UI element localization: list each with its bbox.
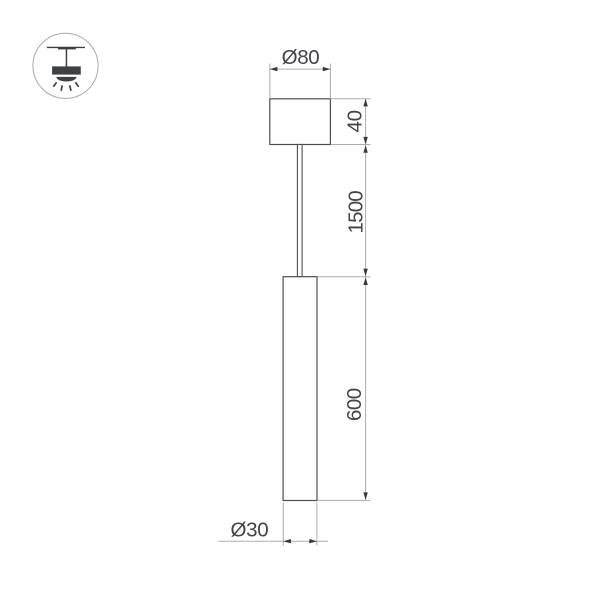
svg-text:Ø30: Ø30 [230, 519, 268, 542]
svg-text:600: 600 [343, 388, 366, 421]
svg-text:Ø80: Ø80 [282, 46, 320, 69]
svg-text:1500: 1500 [344, 191, 367, 234]
svg-text:40: 40 [343, 110, 366, 132]
